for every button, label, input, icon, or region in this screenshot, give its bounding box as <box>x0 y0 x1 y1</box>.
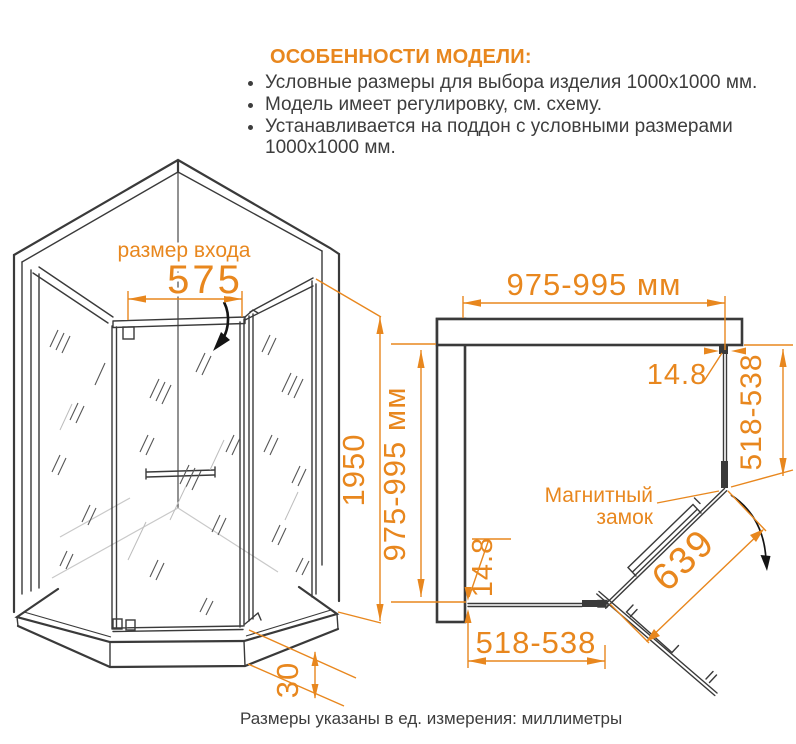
door-width-dim: 639 <box>644 521 723 599</box>
front-view-dimensions: размер входа 575 1950 30 <box>118 239 384 706</box>
plan-top-wall <box>437 319 742 345</box>
bottom-glass-width-dim: 518-538 <box>476 625 597 660</box>
magnetic-lock-label-line2: замок <box>596 506 653 529</box>
wall-gap-bottom-left-dim: 14.8 <box>467 537 499 597</box>
magnetic-lock-label-line1: Магнитный <box>545 484 653 507</box>
right-glass-width-dim: 518-538 <box>735 353 768 470</box>
technical-diagram: размер входа 575 1950 30 <box>0 0 796 744</box>
front-view-drawing <box>14 160 339 667</box>
plan-left-wall <box>437 319 465 622</box>
glass-hatching <box>50 330 309 615</box>
door-handle <box>146 467 215 479</box>
product-diagram-page: ОСОБЕННОСТИ МОДЕЛИ: Условные размеры для… <box>0 0 796 744</box>
plan-left-depth-dim: 975-995 мм <box>377 386 412 561</box>
height-dim: 1950 <box>336 434 371 507</box>
plan-top-width-dim: 975-995 мм <box>506 267 681 302</box>
wall-gap-top-right-dim: 14.8 <box>647 359 707 391</box>
plan-door-swing-arrow <box>731 495 771 571</box>
tray-height-dim: 30 <box>270 662 305 698</box>
entrance-width-dim: 575 <box>167 258 243 302</box>
door-swing-arrow <box>213 302 230 351</box>
